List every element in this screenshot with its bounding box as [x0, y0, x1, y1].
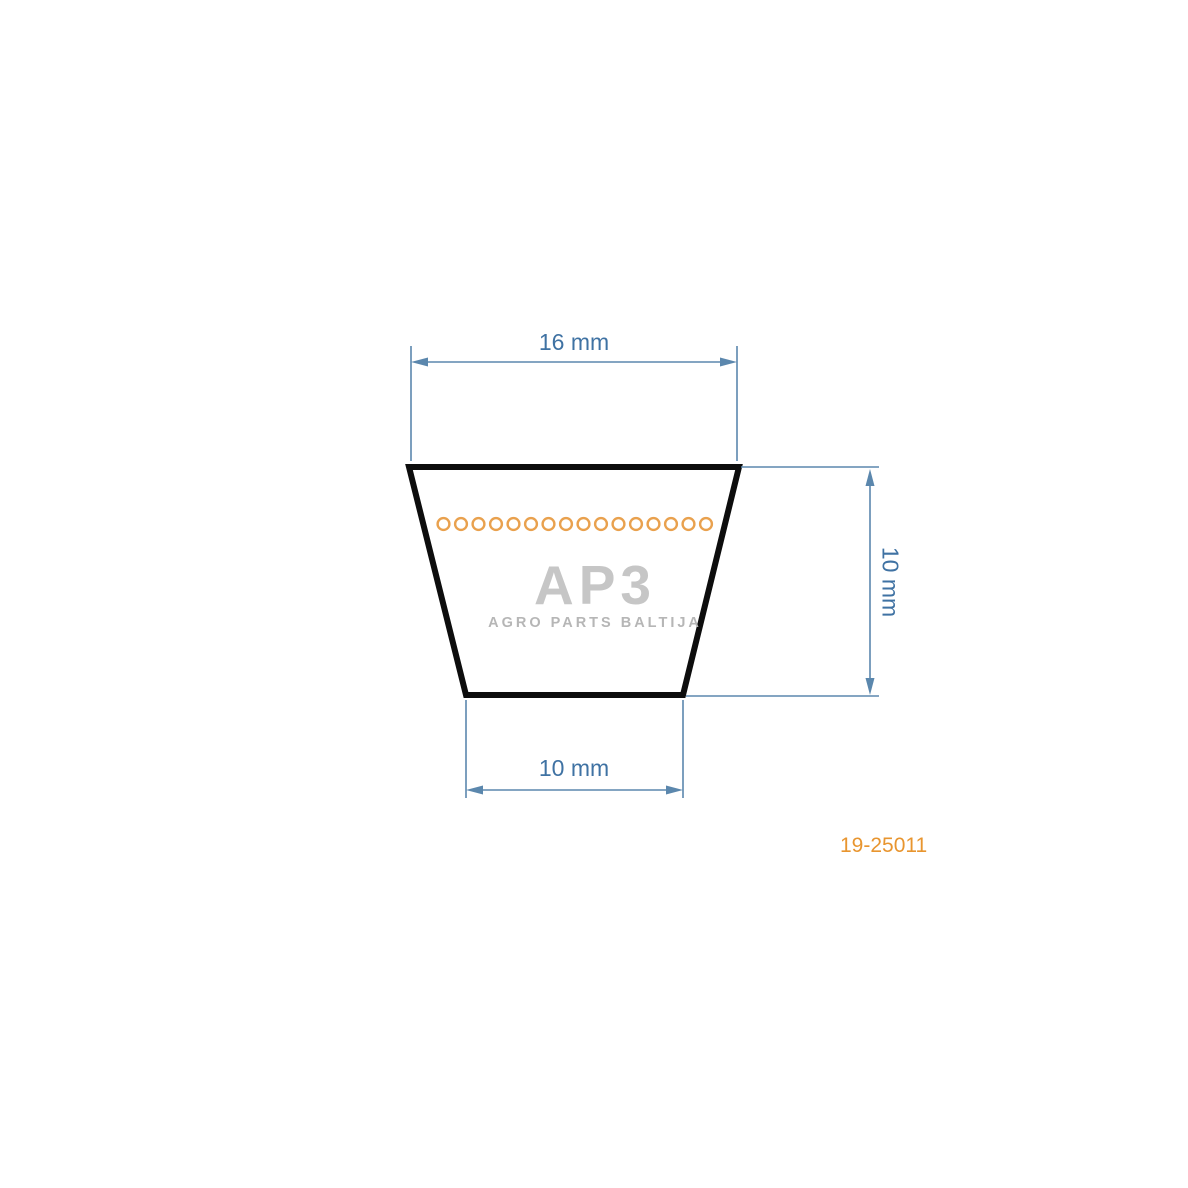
- arrow-right-icon: [666, 786, 683, 795]
- top-width-label: 16 mm: [539, 331, 609, 354]
- top-width-dimension: [411, 346, 737, 461]
- apb-logo-subtitle: AGRO PARTS BALTIJA: [488, 615, 702, 631]
- apb-logo: AP3: [488, 563, 702, 608]
- height-label: 10 mm: [879, 547, 902, 617]
- drawing-canvas: 16 mm 10 mm 10 mm AP3 AGRO PARTS BALTIJA…: [0, 0, 1188, 1188]
- bottom-width-label: 10 mm: [539, 757, 609, 780]
- apb-watermark: AP3 AGRO PARTS BALTIJA: [488, 563, 702, 631]
- part-number: 19-25011: [840, 834, 927, 858]
- arrow-left-icon: [466, 786, 483, 795]
- arrow-down-icon: [866, 678, 875, 695]
- bottom-width-dimension: [466, 700, 683, 798]
- arrow-left-icon: [411, 358, 428, 367]
- arrow-right-icon: [720, 358, 737, 367]
- arrow-up-icon: [866, 469, 875, 486]
